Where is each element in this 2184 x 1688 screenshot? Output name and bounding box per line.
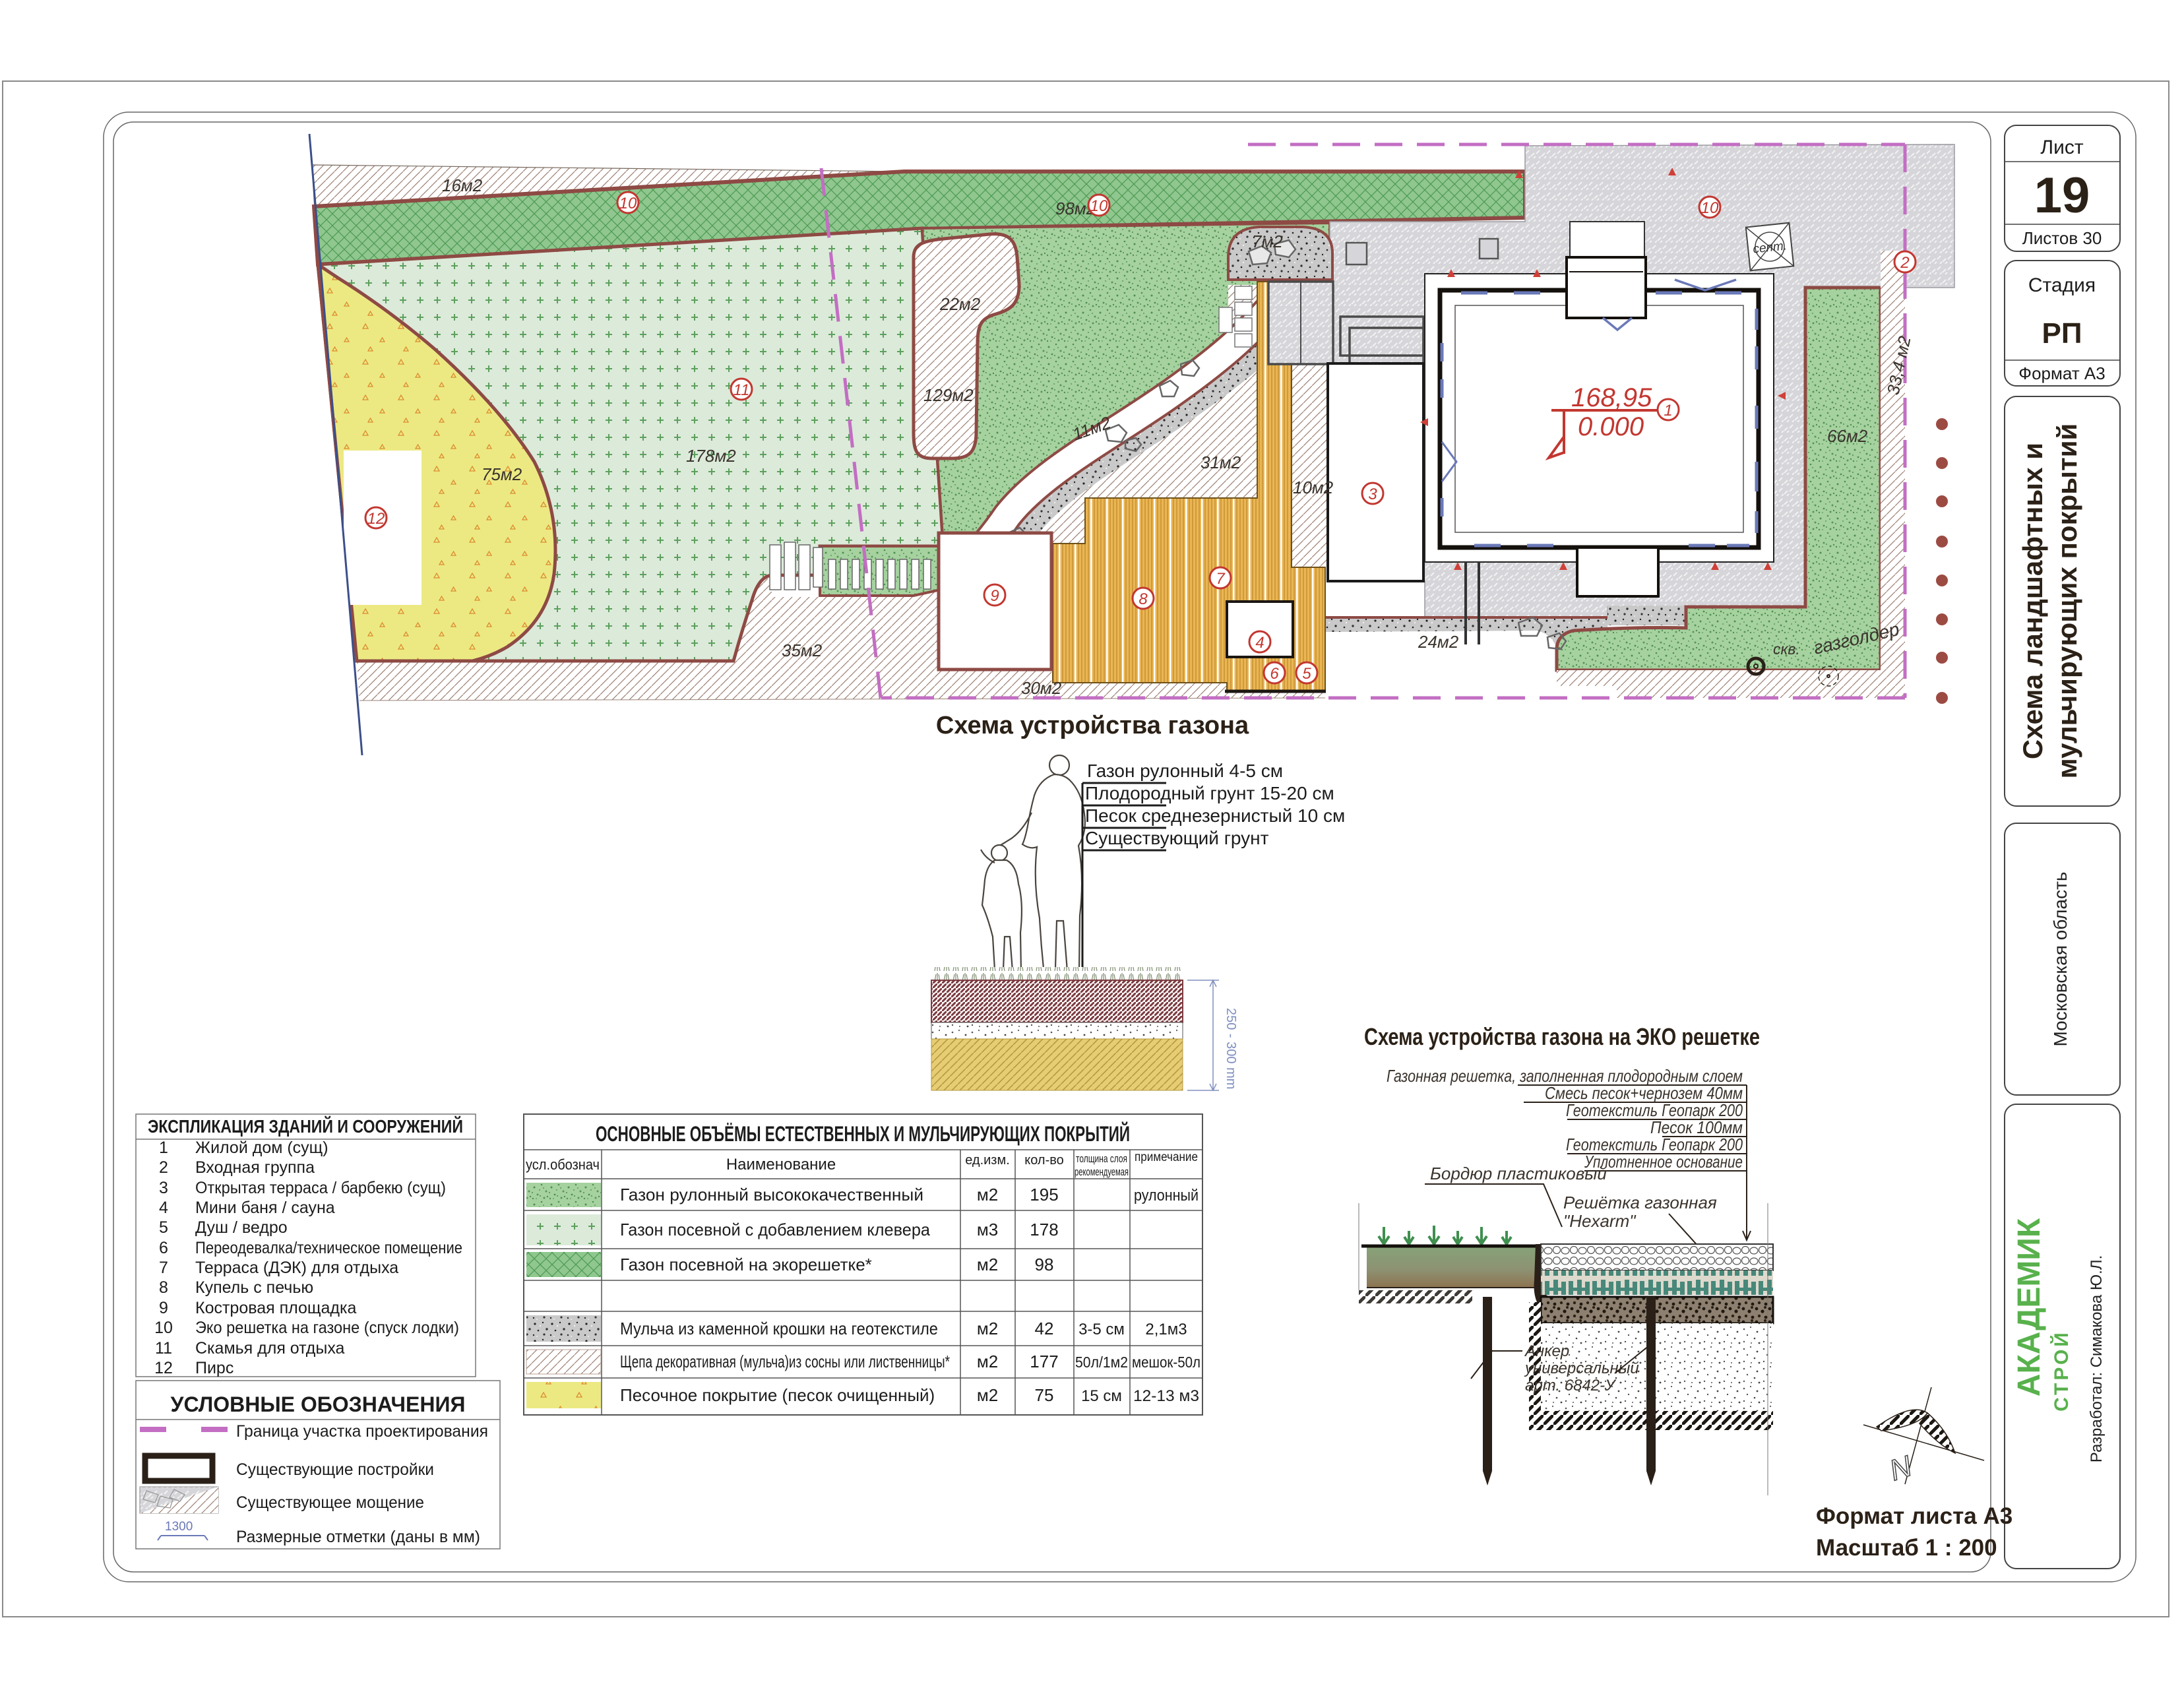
svg-text:5: 5 bbox=[159, 1218, 168, 1237]
svg-text:16м2: 16м2 bbox=[442, 175, 483, 195]
svg-text:Стадия: Стадия bbox=[2028, 274, 2096, 296]
svg-text:"Hexarm": "Hexarm" bbox=[1563, 1211, 1637, 1231]
svg-text:Московская область: Московская область bbox=[2050, 872, 2071, 1047]
svg-text:мульчирующих покрытий: мульчирующих покрытий bbox=[2051, 423, 2082, 779]
svg-text:195: 195 bbox=[1030, 1185, 1058, 1204]
svg-text:10: 10 bbox=[154, 1319, 173, 1337]
svg-text:Формат А3: Формат А3 bbox=[2018, 363, 2105, 383]
svg-text:11: 11 bbox=[155, 1339, 172, 1358]
svg-text:9: 9 bbox=[159, 1299, 168, 1317]
svg-text:3: 3 bbox=[159, 1179, 168, 1197]
svg-text:толщина слоя: толщина слоя bbox=[1076, 1152, 1127, 1165]
svg-text:примечание: примечание bbox=[1135, 1150, 1198, 1164]
svg-text:Наименование: Наименование bbox=[726, 1156, 836, 1173]
svg-text:8: 8 bbox=[159, 1278, 168, 1297]
svg-text:Эко решетка на газоне (спуск л: Эко решетка на газоне (спуск лодки) bbox=[195, 1319, 459, 1337]
svg-text:12-13 м3: 12-13 м3 bbox=[1133, 1387, 1199, 1405]
svg-text:129м2: 129м2 bbox=[923, 385, 974, 405]
svg-text:Пирс: Пирс bbox=[195, 1359, 234, 1377]
svg-text:Решётка газонная: Решётка газонная bbox=[1563, 1193, 1717, 1212]
svg-text:ед.изм.: ед.изм. bbox=[965, 1153, 1010, 1168]
svg-text:Листов 30: Листов 30 bbox=[2022, 228, 2102, 248]
svg-text:м2: м2 bbox=[977, 1185, 998, 1204]
svg-text:м2: м2 bbox=[977, 1352, 998, 1371]
svg-text:3: 3 bbox=[1368, 485, 1377, 503]
svg-text:50л/1м2: 50л/1м2 bbox=[1075, 1354, 1128, 1371]
svg-text:7: 7 bbox=[159, 1259, 168, 1277]
svg-text:Купель с печью: Купель с печью bbox=[195, 1278, 313, 1297]
svg-text:Газон посевной на экорешетке*: Газон посевной на экорешетке* bbox=[620, 1255, 872, 1274]
svg-text:5: 5 bbox=[1302, 665, 1311, 683]
svg-text:7: 7 bbox=[1216, 570, 1226, 588]
svg-text:Схема устройства газона на ЭКО: Схема устройства газона на ЭКО решетке bbox=[1364, 1023, 1760, 1050]
svg-text:Газон рулонный высококачествен: Газон рулонный высококачественный bbox=[620, 1185, 923, 1204]
svg-text:Существующее мощение: Существующее мощение bbox=[236, 1493, 424, 1512]
svg-text:Костровая площадка: Костровая площадка bbox=[195, 1299, 356, 1317]
svg-text:177: 177 bbox=[1030, 1352, 1058, 1371]
svg-text:Анкер: Анкер bbox=[1524, 1342, 1569, 1360]
svg-text:Размерные отметки (даны в мм): Размерные отметки (даны в мм) bbox=[236, 1528, 480, 1546]
svg-text:Масштаб 1 : 200: Масштаб 1 : 200 bbox=[1816, 1535, 1997, 1561]
svg-text:9: 9 bbox=[990, 587, 999, 605]
svg-text:Открытая терраса / барбекю (су: Открытая терраса / барбекю (сущ) bbox=[195, 1179, 446, 1197]
svg-text:арт. 6842-У: арт. 6842-У bbox=[1525, 1377, 1617, 1394]
svg-text:4: 4 bbox=[1255, 634, 1264, 652]
svg-text:6: 6 bbox=[1270, 665, 1279, 683]
svg-text:Мини баня / сауна: Мини баня / сауна bbox=[195, 1199, 335, 1217]
svg-text:19: 19 bbox=[2034, 168, 2090, 224]
svg-text:66м2: 66м2 bbox=[1827, 426, 1868, 446]
svg-text:Мульча из каменной крошки на г: Мульча из каменной крошки на геотекстиле bbox=[620, 1319, 938, 1338]
svg-text:Душ / ведро: Душ / ведро bbox=[195, 1218, 288, 1237]
svg-text:м2: м2 bbox=[977, 1255, 998, 1274]
svg-text:1: 1 bbox=[1664, 402, 1672, 420]
svg-text:42: 42 bbox=[1035, 1319, 1054, 1338]
svg-text:м3: м3 bbox=[977, 1220, 998, 1239]
svg-text:Щепа декоративная (мульча)из с: Щепа декоративная (мульча)из сосны или л… bbox=[620, 1352, 950, 1371]
svg-text:75м2: 75м2 bbox=[482, 464, 522, 484]
svg-text:Жилой дом (сущ): Жилой дом (сущ) bbox=[195, 1139, 328, 1157]
svg-text:Лист: Лист bbox=[2040, 137, 2083, 158]
svg-text:1: 1 bbox=[159, 1139, 168, 1157]
svg-text:Граница участка проектирования: Граница участка проектирования bbox=[236, 1422, 488, 1441]
svg-text:Существующие постройки: Существующие постройки bbox=[236, 1460, 434, 1479]
svg-text:усл.обознач: усл.обознач bbox=[526, 1156, 600, 1173]
svg-text:30м2: 30м2 bbox=[1021, 678, 1062, 698]
svg-text:Песочное покрытие (песок очище: Песочное покрытие (песок очищенный) bbox=[620, 1385, 935, 1405]
svg-text:12: 12 bbox=[154, 1359, 173, 1377]
svg-text:рекомендуемая: рекомендуемая bbox=[1075, 1166, 1129, 1178]
svg-text:Плодородный грунт 15-20 см: Плодородный грунт 15-20 см bbox=[1085, 783, 1334, 803]
svg-text:Формат листа А3: Формат листа А3 bbox=[1816, 1503, 2012, 1529]
svg-text:Скамья для отдыха: Скамья для отдыха bbox=[195, 1339, 345, 1358]
svg-text:м2: м2 bbox=[977, 1319, 998, 1338]
svg-text:98: 98 bbox=[1035, 1255, 1054, 1274]
svg-text:Переодевалка/техническое помещ: Переодевалка/техническое помещение bbox=[195, 1239, 462, 1257]
svg-text:2: 2 bbox=[1900, 254, 1909, 272]
svg-text:скв.: скв. bbox=[1773, 641, 1800, 658]
svg-text:31м2: 31м2 bbox=[1201, 453, 1241, 472]
svg-text:Уплотненное основание: Уплотненное основание bbox=[1584, 1152, 1743, 1172]
svg-text:Газон рулонный 4-5 см: Газон рулонный 4-5 см bbox=[1087, 761, 1283, 781]
svg-text:кол-во: кол-во bbox=[1024, 1153, 1064, 1168]
svg-text:10: 10 bbox=[619, 195, 637, 212]
svg-text:11: 11 bbox=[733, 381, 750, 399]
svg-text:168,95: 168,95 bbox=[1571, 383, 1652, 412]
svg-text:рулонный: рулонный bbox=[1134, 1187, 1199, 1204]
svg-text:35м2: 35м2 bbox=[782, 641, 823, 660]
svg-text:ЭКСПЛИКАЦИЯ ЗДАНИЙ И СООРУЖЕНИ: ЭКСПЛИКАЦИЯ ЗДАНИЙ И СООРУЖЕНИЙ bbox=[148, 1115, 463, 1137]
svg-text:1300: 1300 bbox=[165, 1520, 193, 1534]
svg-text:Бордюр пластиковый: Бордюр пластиковый bbox=[1430, 1164, 1607, 1183]
svg-text:Разработал: Симакова Ю.Л.: Разработал: Симакова Ю.Л. bbox=[2088, 1255, 2106, 1463]
svg-text:0.000: 0.000 bbox=[1578, 412, 1644, 441]
svg-text:24м2: 24м2 bbox=[1418, 632, 1459, 652]
svg-text:Газон посевной с добавлением к: Газон посевной с добавлением клевера bbox=[620, 1220, 931, 1239]
svg-text:4: 4 bbox=[159, 1199, 168, 1217]
svg-text:УСЛОВНЫЕ ОБОЗНАЧЕНИЯ: УСЛОВНЫЕ ОБОЗНАЧЕНИЯ bbox=[171, 1392, 466, 1416]
svg-text:2,1м3: 2,1м3 bbox=[1145, 1321, 1187, 1338]
svg-text:8: 8 bbox=[1139, 590, 1148, 608]
svg-text:10: 10 bbox=[1701, 199, 1719, 217]
svg-text:Входная группа: Входная группа bbox=[195, 1158, 315, 1177]
svg-text:3-5 см: 3-5 см bbox=[1078, 1321, 1125, 1338]
svg-text:мешок-50л: мешок-50л bbox=[1132, 1354, 1201, 1371]
svg-text:Терраса (ДЭК) для отдыха: Терраса (ДЭК) для отдыха bbox=[195, 1259, 398, 1277]
svg-text:22м2: 22м2 bbox=[939, 294, 981, 314]
svg-text:Схема ландшафтных и: Схема ландшафтных и bbox=[2017, 443, 2048, 759]
svg-text:ОСНОВНЫЕ ОБЪЁМЫ ЕСТЕСТВЕННЫХ И: ОСНОВНЫЕ ОБЪЁМЫ ЕСТЕСТВЕННЫХ И МУЛЬЧИРУЮ… bbox=[596, 1122, 1130, 1146]
svg-text:6: 6 bbox=[159, 1239, 168, 1257]
svg-text:10м2: 10м2 bbox=[1293, 478, 1334, 497]
svg-text:10: 10 bbox=[1090, 197, 1108, 215]
svg-text:178м2: 178м2 bbox=[686, 446, 736, 466]
svg-text:12: 12 bbox=[367, 510, 385, 528]
svg-text:250 - 300 mm: 250 - 300 mm bbox=[1224, 1008, 1238, 1089]
svg-text:15 см: 15 см bbox=[1081, 1387, 1122, 1405]
svg-text:75: 75 bbox=[1035, 1385, 1054, 1405]
svg-text:м2: м2 bbox=[977, 1385, 998, 1405]
svg-text:СТРОЙ: СТРОЙ bbox=[2050, 1330, 2073, 1412]
svg-text:178: 178 bbox=[1030, 1220, 1058, 1239]
svg-text:Схема устройства газона: Схема устройства газона bbox=[936, 712, 1249, 739]
svg-text:РП: РП bbox=[2042, 317, 2082, 350]
svg-text:2: 2 bbox=[159, 1158, 168, 1177]
svg-text:Песок среднезернистый 10 см: Песок среднезернистый 10 см bbox=[1085, 805, 1345, 826]
svg-text:АКАДЕМИК: АКАДЕМИК bbox=[2012, 1218, 2047, 1396]
svg-text:7м2: 7м2 bbox=[1252, 232, 1283, 251]
svg-text:Существующий грунт: Существующий грунт bbox=[1085, 828, 1269, 848]
